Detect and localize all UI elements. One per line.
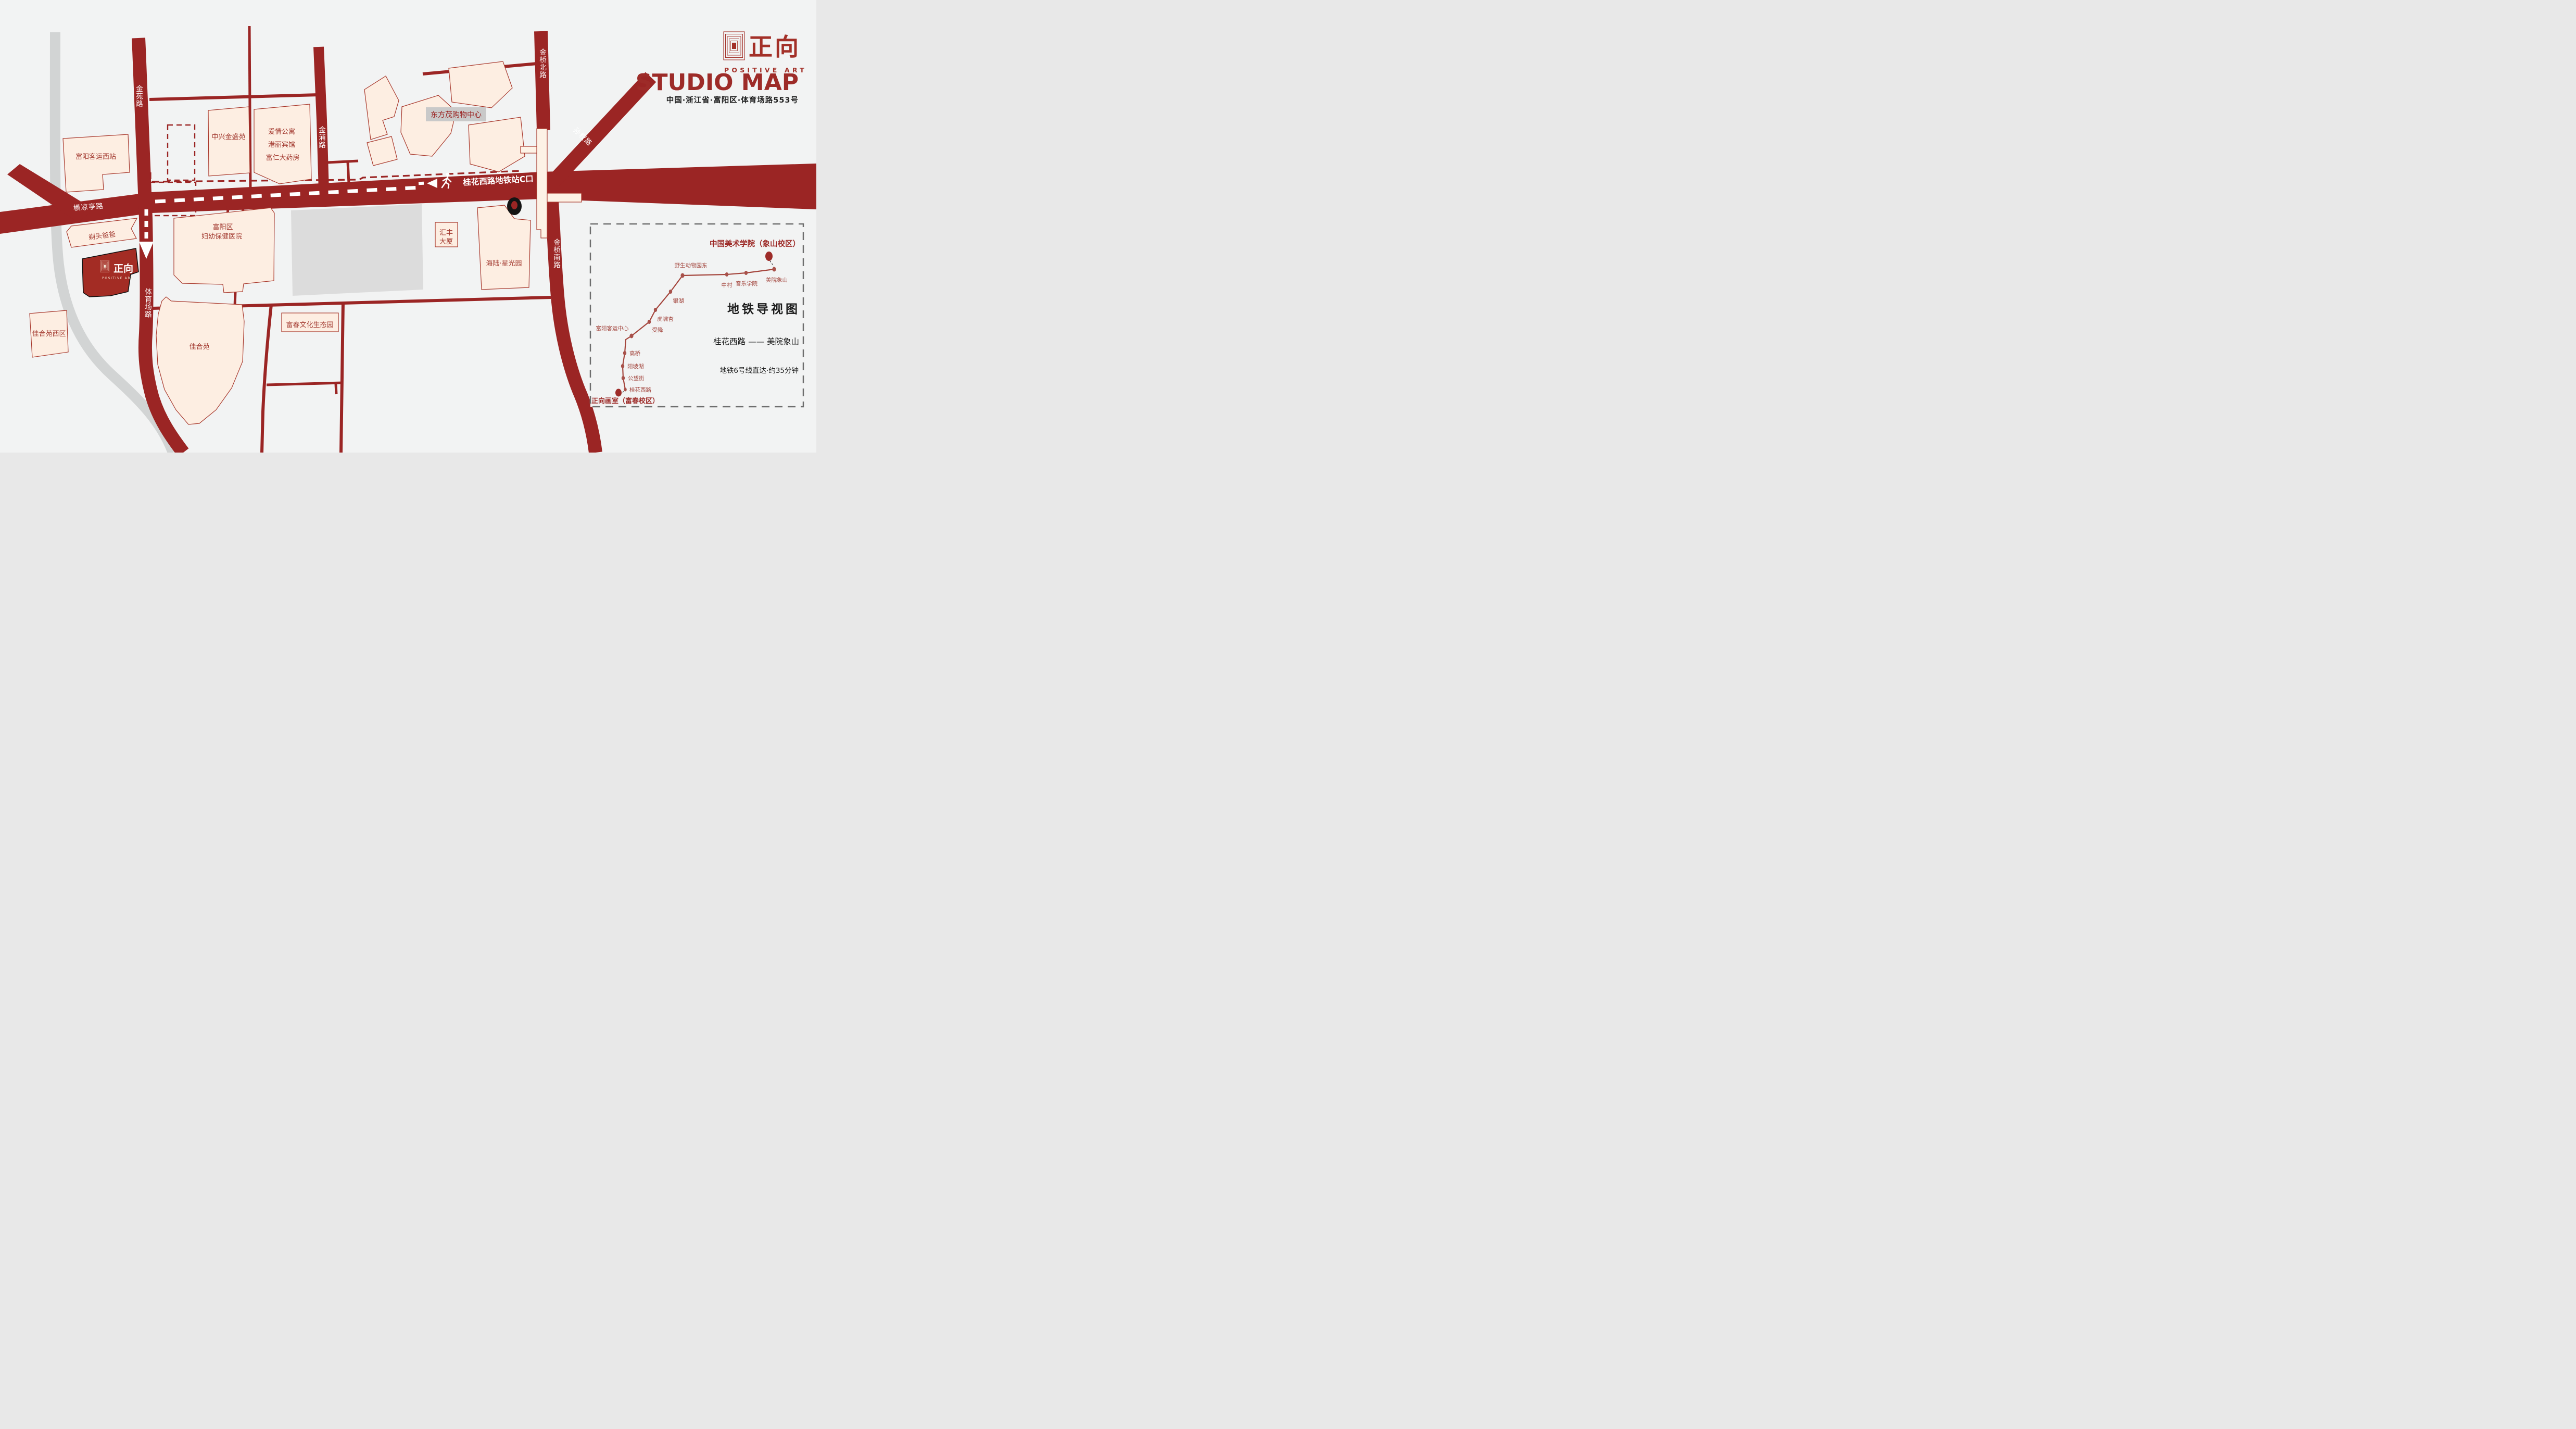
hailu-label: 海陆·星光园	[486, 259, 522, 268]
station-label-yeshengdongwuyuan: 野生动物园东	[675, 262, 708, 269]
station-label-yinhu: 银湖	[673, 297, 684, 304]
huifeng-label-2: 大厦	[439, 238, 453, 246]
keyun-west-label: 富阳客运西站	[75, 153, 116, 161]
studio-map-poster: 正向 POSITIVE ART 东方茂购物中心 富阳客运西站 中兴金盛苑 爱情公…	[0, 0, 816, 453]
station-label-meiyuanxiangshan: 美院象山	[766, 277, 788, 283]
road-label-jinqiao-south: 金桥南路	[552, 239, 561, 269]
studio-logo-zh: 正向	[113, 262, 133, 274]
road-jinpu	[319, 47, 324, 192]
station-label-gongwangjie: 公望街	[628, 375, 645, 382]
inset-origin-dot	[615, 389, 622, 397]
road-jinqiao-north	[541, 31, 544, 130]
hospital-label-1: 富阳区	[212, 223, 233, 231]
station-label-keyunzhongxin: 富阳客运中心	[596, 325, 629, 332]
page-title: STUDIO MAP	[636, 69, 799, 96]
inset-origin-label: 正向画室（富春校区）	[591, 397, 659, 405]
road-south-vertical-2	[341, 302, 343, 453]
studio-logo-en: POSITIVE ART	[102, 277, 133, 280]
furen-label: 富仁大药房	[266, 154, 299, 162]
inset-dest-dot	[765, 252, 773, 261]
jiaheyuan-label: 佳合苑	[189, 343, 209, 351]
building-hospital	[174, 208, 274, 293]
zhongxing-label: 中兴金盛苑	[211, 133, 245, 141]
gangli-label: 港丽宾馆	[268, 141, 295, 149]
road-label-jinpu: 金浦路	[317, 126, 326, 149]
inset-title: 中国美术学院（象山校区）	[710, 239, 800, 248]
overpass-arm-left	[521, 146, 537, 153]
hospital-label-2: 妇幼保健医院	[201, 232, 242, 241]
metro-exit-dot-center	[511, 201, 517, 209]
overpass-arm-right	[547, 193, 582, 202]
station-label-shoujiang: 受降	[652, 327, 664, 333]
jiaheyuan-west-label: 佳合苑西区	[32, 330, 66, 338]
page-address: 中国·浙江省·富阳区·体育场路553号	[666, 95, 799, 105]
aiqing-label: 爱情公寓	[268, 128, 295, 136]
station-label-yangpohu: 阳坡湖	[627, 363, 644, 370]
inset-legend-title: 地铁导视图	[727, 302, 800, 316]
building-zhongxing	[208, 107, 250, 176]
station-label-gaoqiao: 高桥	[629, 350, 641, 357]
station-label-zhongcun: 中村	[722, 282, 733, 289]
inset-legend-note: 地铁6号线直达·约35分钟	[719, 366, 799, 375]
inset-legend-route: 桂花西路 —— 美院象山	[713, 336, 799, 346]
station-label-huxiaoxing: 虎啸杏	[657, 316, 674, 322]
header-logo-zh: 正向	[749, 33, 801, 61]
station-label-guihuaxilu: 桂花西路	[629, 386, 651, 393]
huifeng-label-1: 汇丰	[439, 229, 453, 237]
road-label-jinqiao-north: 金桥北路	[538, 48, 547, 79]
station-label-yinyuexueyuan: 音乐学院	[736, 280, 757, 287]
gray-block	[291, 204, 423, 296]
shengtaiyuan-label: 富春文化生态园	[286, 321, 333, 329]
overpass-vertical	[537, 129, 547, 238]
arrow-left-dash	[419, 182, 424, 185]
road-label-jinyuan: 金苑路	[134, 85, 143, 108]
road-label-tiyuchang: 体育场路	[143, 288, 152, 318]
dongfangmao-label: 东方茂购物中心	[431, 110, 482, 119]
